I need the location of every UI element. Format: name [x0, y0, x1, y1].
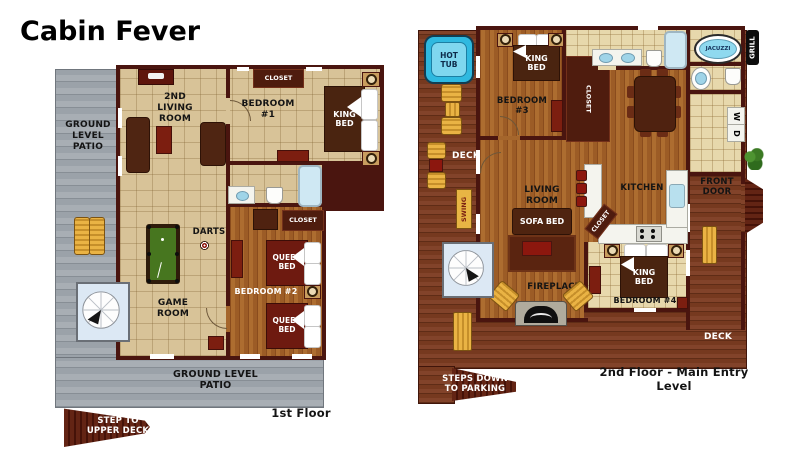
- deck-bench: [453, 312, 472, 351]
- tv-cabinet: [138, 69, 174, 85]
- cabinet: [677, 297, 688, 309]
- toilet-icon: [725, 68, 741, 85]
- window: [306, 67, 322, 71]
- coffee-table: [156, 126, 172, 154]
- floor2-caption: 2nd Floor - Main Entry Level: [594, 366, 754, 394]
- pool-pocket: [147, 252, 151, 256]
- pool-pocket: [175, 252, 179, 256]
- patio-left-label: GROUND LEVEL PATIO: [58, 120, 118, 152]
- hot-tub-label: HOT TUB: [431, 42, 467, 77]
- king-bed: KING BED: [324, 86, 365, 152]
- wall-segment: [690, 172, 741, 176]
- window: [634, 308, 656, 312]
- deck-bottom-label: DECK: [696, 332, 740, 343]
- window: [118, 156, 122, 176]
- deck-patch: [584, 312, 686, 322]
- deck-chair: [427, 172, 446, 189]
- window: [240, 354, 260, 359]
- spiral-staircase-icon: [78, 284, 124, 336]
- burner: [651, 235, 655, 239]
- deck-chair: [441, 84, 462, 102]
- pillow: [361, 89, 378, 120]
- floor-plan-page: Cabin Fever 2ND LIVING ROOM CLOSET BEDRO…: [0, 0, 800, 467]
- sink-icon: [621, 53, 635, 63]
- dryer: D: [727, 124, 745, 142]
- toilet-icon: [266, 187, 283, 204]
- fireplace-glow: [530, 313, 552, 324]
- lamp-icon: [671, 245, 682, 256]
- darts-label: DARTS: [186, 227, 232, 237]
- jacuzzi: JACUZZI: [694, 34, 742, 64]
- lamp-icon: [366, 74, 377, 85]
- patio-chair: [89, 217, 105, 255]
- sink-icon: [236, 191, 249, 201]
- sofa-bed-label: SOFA BED: [513, 209, 571, 234]
- pillow: [304, 305, 321, 327]
- nightstand: [604, 244, 620, 258]
- bar-stool: [576, 170, 587, 181]
- steps-down-label: STEPS DOWN TO PARKING: [434, 374, 516, 394]
- pillow: [304, 242, 321, 264]
- king-bed-label: KING BED: [325, 87, 364, 151]
- washer-label: W: [731, 112, 740, 121]
- dresser: [253, 209, 278, 230]
- bush-icon: [744, 148, 764, 170]
- nightstand: [362, 72, 380, 87]
- lamp-icon: [366, 153, 377, 164]
- tub-water: [695, 72, 707, 85]
- spiral-staircase: [442, 242, 494, 298]
- burner: [640, 235, 644, 239]
- floor1-caption: 1st Floor: [266, 407, 336, 421]
- second-living-room-label: 2ND LIVING ROOM: [140, 92, 210, 124]
- grill-label: GRILL: [746, 30, 759, 65]
- game-room-label: GAME ROOM: [138, 298, 208, 320]
- sofa-bed: SOFA BED: [512, 208, 572, 235]
- closet-label: CLOSET: [283, 211, 323, 230]
- bedroom-2-closet: CLOSET: [282, 210, 324, 231]
- dresser: [551, 100, 563, 132]
- toilet-icon: [646, 50, 662, 67]
- stove-icon: [636, 226, 662, 242]
- bedroom-1-closet: CLOSET: [253, 69, 304, 88]
- dining-table: [634, 76, 676, 132]
- sink-icon: [599, 53, 613, 63]
- door-gap: [498, 136, 520, 140]
- patio-chair: [74, 217, 90, 255]
- wall-segment: [690, 90, 741, 94]
- porch-bench: [702, 226, 717, 264]
- bar-stool: [576, 183, 587, 194]
- deck-chair: [427, 142, 446, 159]
- bedroom-2-label: BEDROOM #2: [230, 287, 302, 297]
- bedroom-4-label: BEDROOM #4: [602, 296, 688, 306]
- game-room-cabinet: [208, 336, 224, 350]
- pillow: [361, 120, 378, 151]
- bookshelf: [231, 240, 243, 278]
- tv-icon: [148, 73, 164, 79]
- lamp-icon: [607, 245, 618, 256]
- front-door-label: FRONT DOOR: [692, 177, 742, 197]
- lamp-icon: [307, 286, 318, 297]
- lamp-icon: [551, 34, 562, 45]
- nightstand: [668, 244, 684, 258]
- deck-table: [445, 102, 460, 117]
- window: [476, 56, 480, 78]
- pool-felt: [150, 228, 176, 280]
- window: [118, 108, 122, 128]
- page-title: Cabin Fever: [20, 16, 200, 47]
- pool-ball: [161, 238, 164, 241]
- coffee-table: [522, 241, 552, 256]
- kitchen-sink-icon: [669, 184, 685, 208]
- jacuzzi-label: JACUZZI: [706, 46, 731, 52]
- bedroom-3-label: BEDROOM #3: [492, 96, 552, 116]
- pillow: [304, 263, 321, 285]
- pillow: [304, 326, 321, 348]
- bar-stool: [576, 196, 587, 207]
- dryer-label: D: [731, 130, 740, 137]
- deck-left-label: DECK: [446, 151, 486, 162]
- spiral-staircase: [76, 282, 130, 342]
- hot-tub: HOT TUB: [424, 35, 474, 84]
- dresser: [277, 150, 309, 162]
- window: [686, 250, 690, 276]
- front-steps: [745, 178, 763, 234]
- dartboard-icon: [200, 241, 209, 250]
- pool-pocket: [175, 225, 179, 229]
- nightstand: [304, 285, 321, 299]
- patio-bottom-label: GROUND LEVEL PATIO: [148, 369, 283, 392]
- deck-table: [429, 159, 443, 172]
- nightstand: [497, 33, 513, 47]
- window: [292, 354, 312, 359]
- living-room-label: LIVING ROOM: [514, 185, 570, 207]
- fireplace: [515, 301, 567, 326]
- window: [476, 214, 480, 234]
- window: [150, 354, 174, 359]
- window: [237, 67, 249, 71]
- spiral-staircase-icon: [444, 244, 488, 292]
- window: [638, 26, 658, 30]
- sofa: [126, 117, 150, 173]
- washer: W: [727, 107, 745, 125]
- bathroom-vanity: [592, 49, 642, 66]
- bedroom-1-label: BEDROOM #1: [226, 99, 310, 121]
- wall-segment: [476, 136, 566, 140]
- deck-chair: [441, 117, 462, 135]
- sofa: [200, 122, 226, 166]
- burner: [651, 229, 655, 233]
- door-gap: [598, 66, 616, 70]
- swing: SWING: [456, 189, 472, 229]
- pool-pocket: [147, 225, 151, 229]
- closet-label: CLOSET: [254, 70, 303, 87]
- wall-segment: [476, 26, 745, 30]
- bathroom-vanity: [228, 186, 255, 204]
- lamp-icon: [500, 34, 511, 45]
- bathtub-icon: [664, 31, 687, 69]
- nightstand: [362, 151, 380, 166]
- nightstand: [548, 33, 564, 47]
- storage-block: [322, 161, 380, 207]
- pool-pocket: [175, 279, 179, 283]
- garden-tub-icon: [691, 67, 711, 90]
- pool-pocket: [147, 279, 151, 283]
- bathtub-icon: [298, 165, 322, 207]
- pool-table: [146, 224, 180, 284]
- step-to-upper-deck-label: STEP TO UPPER DECK: [76, 416, 160, 436]
- burner: [640, 229, 644, 233]
